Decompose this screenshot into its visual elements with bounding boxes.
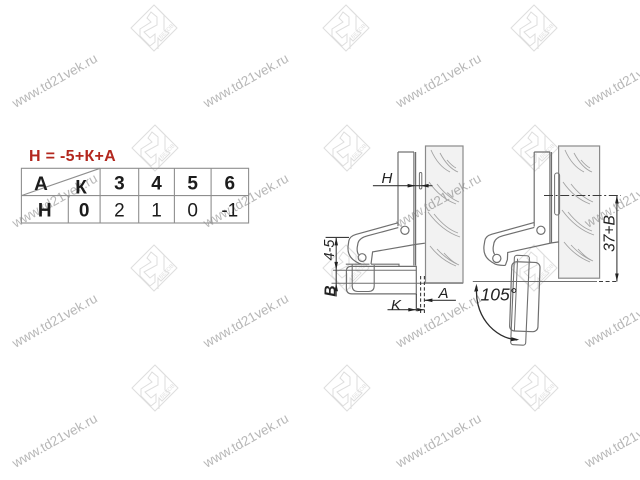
- svg-text:37+B: 37+B: [602, 215, 619, 252]
- svg-text:3: 3: [114, 174, 125, 195]
- svg-text:0: 0: [79, 201, 90, 222]
- svg-text:A: A: [438, 285, 449, 302]
- svg-text:4-5: 4-5: [322, 239, 338, 261]
- svg-text:5: 5: [187, 174, 198, 195]
- svg-text:Н: Н: [38, 201, 52, 222]
- svg-text:K: K: [391, 297, 402, 314]
- svg-text:1: 1: [151, 201, 162, 222]
- svg-text:H = -5+К+А: H = -5+К+А: [29, 148, 116, 165]
- svg-text:-1: -1: [221, 201, 238, 222]
- svg-text:6: 6: [225, 174, 236, 195]
- svg-text:2: 2: [114, 201, 125, 222]
- svg-text:А: А: [34, 174, 48, 195]
- svg-text:0: 0: [187, 201, 198, 222]
- svg-text:К: К: [75, 178, 87, 199]
- svg-text:H: H: [382, 170, 393, 187]
- svg-text:B: B: [323, 285, 340, 296]
- svg-text:105°: 105°: [481, 285, 517, 305]
- svg-text:4: 4: [151, 174, 162, 195]
